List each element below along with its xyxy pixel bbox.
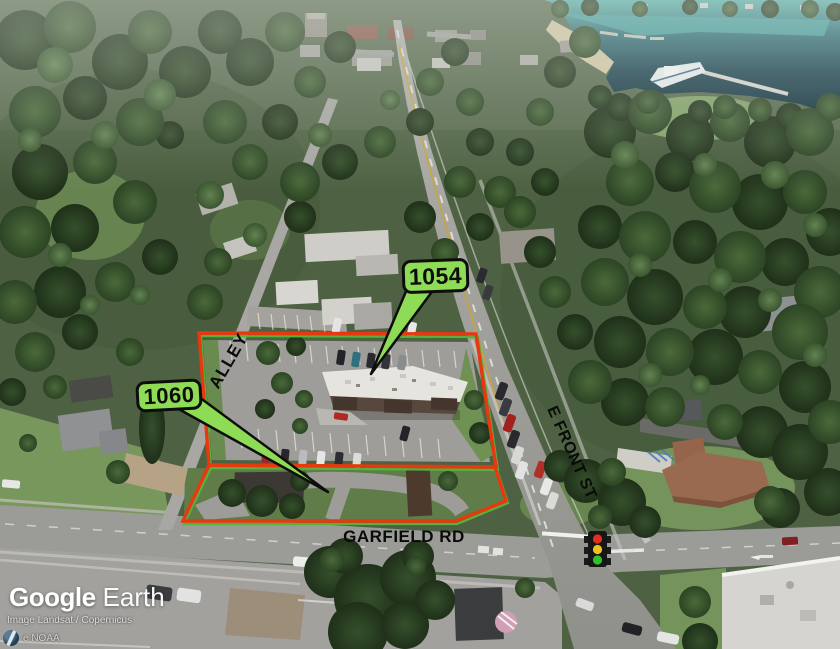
aerial-imagery bbox=[0, 0, 840, 649]
parcel-callout-1060-label: 1060 bbox=[143, 381, 195, 410]
haze-overlay bbox=[0, 0, 840, 190]
parcel-callout-1054-label: 1054 bbox=[408, 262, 462, 291]
google-earth-view: 1054 1060 ALLEY E FRONT ST GARFIELD RD G… bbox=[0, 0, 840, 649]
traffic-light-icon bbox=[584, 531, 611, 567]
google-earth-logo-google: Google bbox=[9, 582, 96, 612]
parcel-callout-1060[interactable]: 1060 bbox=[135, 378, 203, 412]
attribution-row: e NOAA bbox=[3, 630, 60, 646]
attribution-imagery: Image Landsat / Copernicus bbox=[7, 615, 132, 626]
street-label-garfield-rd: GARFIELD RD bbox=[342, 527, 466, 547]
se-corner-building bbox=[722, 558, 840, 649]
parcel-callout-1054[interactable]: 1054 bbox=[401, 258, 469, 294]
globe-logo-icon bbox=[3, 630, 19, 646]
google-earth-logo-earth: Earth bbox=[103, 582, 165, 612]
google-earth-logo: GoogleEarth bbox=[9, 582, 165, 613]
attribution-noaa: e NOAA bbox=[23, 633, 60, 644]
